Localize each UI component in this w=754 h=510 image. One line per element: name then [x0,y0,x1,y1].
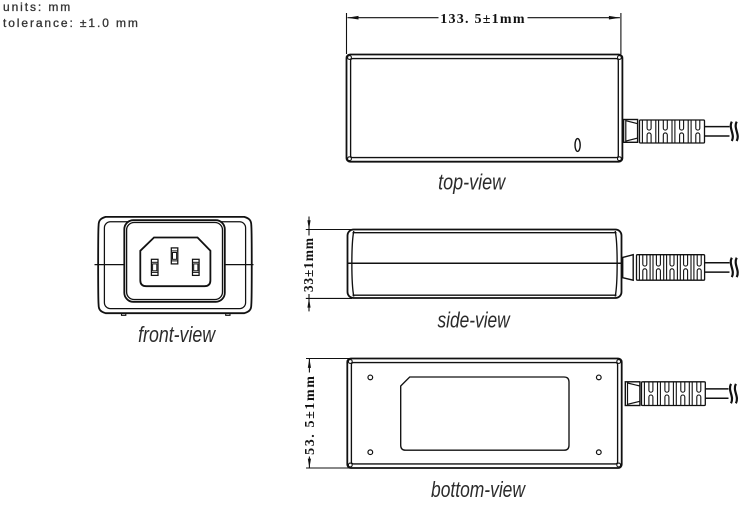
svg-text:33±1mm: 33±1mm [301,237,316,292]
svg-text:top-view: top-view [438,171,506,195]
svg-text:133. 5±1mm: 133. 5±1mm [440,12,526,27]
svg-text:front-view: front-view [138,323,216,347]
svg-text:side-view: side-view [438,308,511,333]
svg-text:53. 5±1mm: 53. 5±1mm [303,374,318,454]
svg-text:bottom-view: bottom-view [431,478,526,503]
